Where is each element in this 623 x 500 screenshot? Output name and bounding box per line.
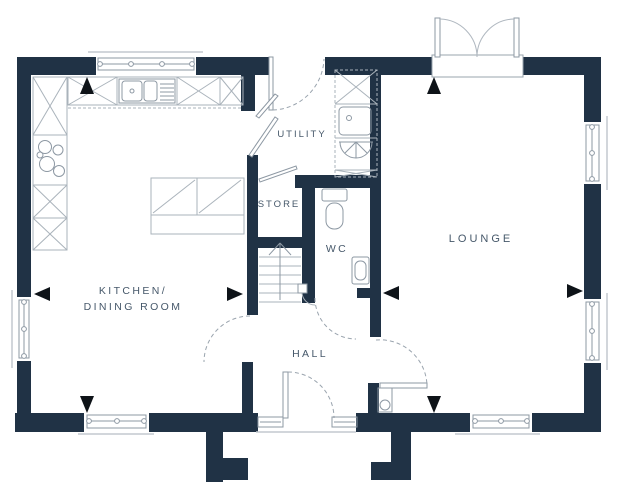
floor-plan: KITCHEN/ DINING ROOM UTILITY STORE WC HA…: [0, 0, 623, 500]
room-label-wc: WC: [326, 241, 348, 257]
room-label-store: STORE: [258, 197, 301, 213]
kitchen-label-line1: KITCHEN/: [84, 283, 183, 299]
back-door-swing: [273, 59, 324, 110]
kitchen-side-window: [15, 297, 33, 361]
cylinder-cupboard: [378, 388, 392, 412]
french-door-leaf-right: [514, 18, 519, 57]
lounge-measure-arrow-left: [383, 286, 399, 300]
kitchen-label-line2: DINING ROOM: [84, 299, 183, 315]
floorplan-linework: [0, 0, 623, 500]
curved-step: [302, 292, 315, 305]
kitchen-measure-arrow-right: [227, 287, 243, 301]
kitchen-front-window: [84, 411, 149, 433]
windows: [12, 52, 607, 434]
front-door-leaf: [283, 372, 288, 418]
kitchen-measure-arrow-up: [80, 77, 94, 94]
front-door-sidelights: [258, 417, 357, 427]
kitchen-island: [151, 178, 244, 234]
basin: [352, 257, 369, 284]
french-doors: [432, 18, 523, 77]
utility-door-leaf-lower: [249, 117, 278, 157]
utility-sink: [339, 107, 371, 135]
room-label-lounge: LOUNGE: [449, 231, 513, 247]
french-door-frame: [432, 55, 523, 77]
utility-door-leaf-upper: [256, 94, 278, 118]
utility-fixtures: [335, 70, 377, 177]
lounge-side-window-lower: [582, 299, 603, 363]
kitchen-left-counter: [33, 77, 67, 250]
room-label-kitchen: KITCHEN/ DINING ROOM: [84, 283, 183, 315]
french-door-leaf-left: [435, 18, 440, 57]
lounge-door-swing: [376, 340, 427, 386]
newel-post: [298, 284, 307, 293]
kitchen-fixtures: [33, 77, 244, 250]
staircase: [259, 243, 315, 305]
front-door-swing: [288, 372, 334, 418]
lounge-measure-arrow-right: [567, 284, 583, 298]
wc-door-swing: [315, 298, 356, 339]
kitchen-sink: [119, 79, 175, 103]
kitchen-door-swing: [204, 316, 250, 362]
hob: [37, 141, 65, 177]
doors: [204, 18, 523, 427]
lounge-door-leaf: [380, 383, 427, 388]
lounge-side-window-upper: [582, 122, 603, 184]
lounge-front-window: [470, 411, 532, 433]
stair-direction-arrow: [269, 243, 280, 255]
kitchen-measure-arrow-left: [34, 287, 50, 301]
kitchen-measure-arrow-down: [80, 396, 94, 413]
window-sills: [12, 52, 607, 434]
washing-machine: [339, 142, 373, 158]
toilet: [322, 189, 347, 229]
kitchen-rear-window: [96, 55, 196, 76]
room-label-utility: UTILITY: [277, 127, 326, 143]
store-door-leaf: [259, 166, 297, 182]
room-label-hall: HALL: [292, 346, 328, 362]
lounge-measure-arrow-down: [427, 396, 441, 413]
wc-fixtures: [322, 189, 369, 284]
lounge-measure-arrow-up: [427, 77, 441, 94]
